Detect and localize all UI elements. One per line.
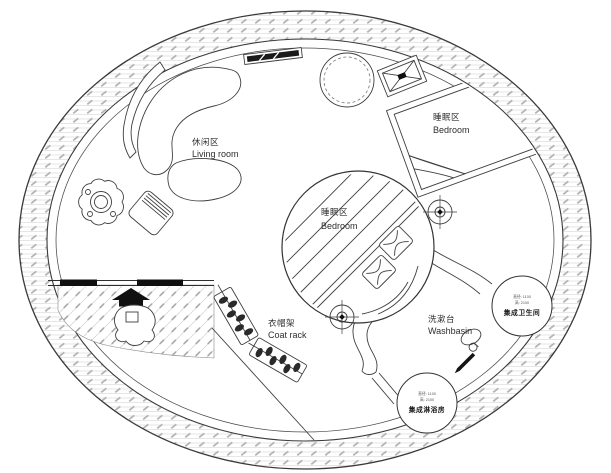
shower-pod: 直径: 1100 高: 2100 集成淋浴房 [397, 373, 457, 433]
bathroom-name: 集成卫生间 [503, 308, 540, 317]
coat-rack-label-en: Coat rack [268, 330, 307, 340]
bedroom-upper-label-zh: 睡眠区 [433, 112, 460, 122]
shower-spec-1: 直径: 1100 [418, 391, 436, 396]
plant-icon [79, 179, 124, 225]
round-table-icon [320, 53, 374, 107]
bedroom-center-label-zh: 睡眠区 [321, 207, 348, 217]
coat-rack-label-zh: 衣帽架 [268, 318, 295, 328]
washbasin-label-zh: 洗漱台 [428, 314, 455, 324]
shower-name: 集成淋浴房 [408, 405, 445, 414]
floor-plan-canvas: 直径: 1100 高: 2100 集成卫生间 直径: 1100 高: 2100 … [0, 0, 611, 473]
living-room-label-en: Living room [192, 149, 239, 159]
bathroom-pod: 直径: 1100 高: 2100 集成卫生间 [492, 276, 552, 336]
washbasin-label-en: Washbasin [428, 326, 472, 336]
shower-spec-2: 高: 2100 [420, 397, 434, 402]
bedroom-center-label-en: Bedroom [321, 221, 358, 231]
living-room-label-zh: 休闲区 [192, 137, 219, 147]
bathroom-spec-1: 直径: 1100 [513, 294, 531, 299]
bathroom-spec-2: 高: 2100 [515, 300, 529, 305]
bedroom-upper-label-en: Bedroom [433, 125, 470, 135]
